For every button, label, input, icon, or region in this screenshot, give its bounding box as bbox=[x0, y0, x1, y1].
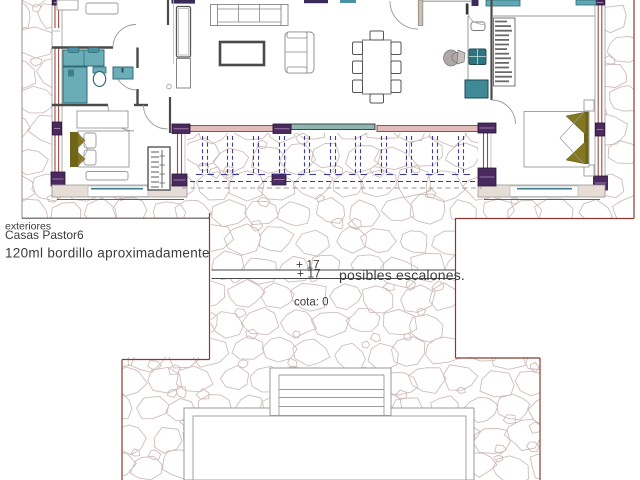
svg-text:posibles escalones.: posibles escalones. bbox=[339, 267, 465, 283]
svg-text:cota: 0: cota: 0 bbox=[294, 297, 329, 309]
svg-text:Casas Pastor6: Casas Pastor6 bbox=[5, 228, 84, 242]
svg-text:120ml bordillo aproximadamente: 120ml bordillo aproximadamente bbox=[5, 246, 210, 261]
svg-text:+ 17: + 17 bbox=[297, 267, 321, 281]
